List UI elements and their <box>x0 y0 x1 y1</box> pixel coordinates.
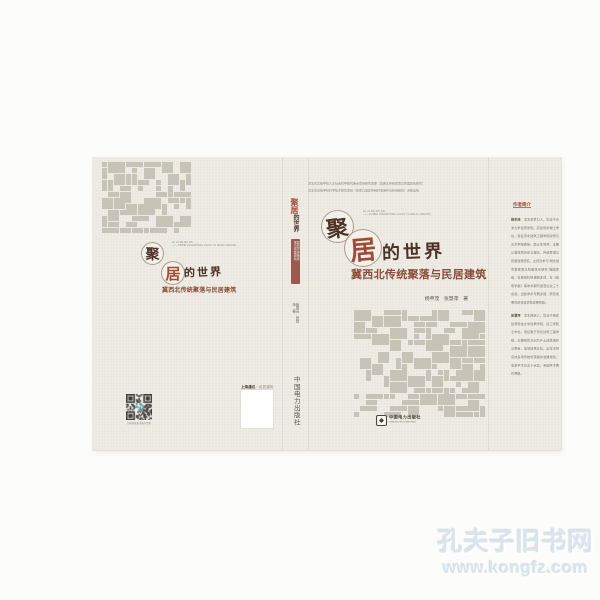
front-title-char2: 居 <box>348 228 377 267</box>
book-jacket-spread: JU JU DE SHI JIE —— JIXIBEI CHUANTONG JU… <box>93 158 561 450</box>
author-1-name: 杨申茂 <box>511 218 521 222</box>
qr-code <box>126 394 152 420</box>
spine-title: 聚居的世界 <box>286 198 304 244</box>
author-flap-panel: 作者简介 杨申茂 河北张家口人，毕业于天津大学建筑学院，获建筑学博士学位。现任河… <box>488 158 561 450</box>
kongfz-watermark: 孔夫子旧书网 www.kongfz.com <box>433 530 598 576</box>
spine-authors-text: 杨申茂 张慧萍 著 <box>292 303 299 323</box>
spine-publisher-text: 中国电力出版社 <box>292 376 299 432</box>
spine-publisher: 中国电力出版社 <box>287 376 303 432</box>
back-title-char2: 居 <box>165 263 180 284</box>
watermark-site-url: www.kongfz.com <box>433 559 598 576</box>
front-authors: 杨申茂 张慧萍 著 <box>408 296 468 302</box>
qr-caption: 扫码获取更多图书资讯 <box>119 422 159 425</box>
back-title-char1: 聚 <box>146 244 160 264</box>
front-title-circle-ju2: 居 <box>344 229 382 267</box>
publisher-name-cn: 中国电力出版社 <box>389 415 431 421</box>
front-title-rest: 的世界 <box>382 237 446 265</box>
front-tagline-line2: —— JIXIBEI CHUANTONG JULUO YU MINJU JIAN… <box>363 213 459 216</box>
shelf-label: 上架建议 <box>241 386 255 390</box>
spine-title-char2: 居 <box>290 206 300 214</box>
front-note-line2: 河北省高等学校科学技术研究项目（张家口地区传统村落保护与利用研究）资助出版 <box>308 189 468 193</box>
spine-subtitle-band: 冀西北传统聚落与民居建筑 <box>291 239 300 284</box>
spine-authors: 杨申茂 张慧萍 著 <box>286 303 304 339</box>
author-bio-1: 杨申茂 河北张家口人，毕业于天津大学建筑学院，获建筑学博士学位。现任河北建筑工程… <box>511 216 559 307</box>
book-listing-photo: { "watermark": { "site_name": "孔夫子旧书网", … <box>0 0 600 600</box>
barcode-box <box>241 390 273 428</box>
spine-title-rest: 的世界 <box>292 214 299 232</box>
back-title-circle-ju1: 聚 <box>141 242 164 265</box>
publisher-logo-icon <box>376 415 387 426</box>
author-1-bio-text: 河北张家口人，毕业于天津大学建筑学院，获建筑学博士学位。现任河北建筑工程学院建筑… <box>511 218 559 305</box>
publisher-name-en: CHINA ELECTRIC POWER PRESS <box>389 421 423 423</box>
author-2-name: 张慧萍 <box>511 314 521 318</box>
shelf-value: ：民居建筑 <box>255 386 273 390</box>
front-note-line1: 河北省高等学校人文社会科学研究重点项目研究成果（冀西北传统聚落与民居建筑研究） <box>308 182 468 186</box>
back-village-pattern <box>102 162 192 234</box>
author-2-bio-text: 河北保定人，毕业于西安建筑科技大学建筑学院，获工学硕士学位。现任教于河北建筑工程… <box>511 314 559 376</box>
front-cover-panel: 河北省高等学校人文社会科学研究重点项目研究成果（冀西北传统聚落与民居建筑研究） … <box>308 158 488 450</box>
front-title-tagline: JU JU DE SHI JIE —— JIXIBEI CHUANTONG JU… <box>363 210 459 216</box>
back-title-circle-ju2: 居 <box>161 261 185 285</box>
spine-panel: 聚居的世界 冀西北传统聚落与民居建筑 杨申茂 张慧萍 著 中国电力出版社 <box>282 158 308 450</box>
back-title-rest: 的世界 <box>184 263 224 280</box>
front-village-pattern <box>354 310 486 418</box>
spine-subtitle-text: 冀西北传统聚落与民居建筑 <box>293 241 299 263</box>
back-subtitle: 冀西北传统聚落与民居建筑 <box>162 285 236 294</box>
front-subtitle: 冀西北传统聚落与民居建筑 <box>351 266 487 282</box>
back-tagline-line2: —— JIXIBEI CHUANTONG JULUO YU MINJU JIAN… <box>172 244 237 247</box>
author-bio-2: 张慧萍 河北保定人，毕业于西安建筑科技大学建筑学院，获工学硕士学位。现任教于河北… <box>511 312 559 378</box>
watermark-site-name: 孔夫子旧书网 <box>433 530 598 555</box>
spine-title-char1: 聚 <box>290 198 300 206</box>
back-cover-panel: JU JU DE SHI JIE —— JIXIBEI CHUANTONG JU… <box>93 158 282 450</box>
back-title-tagline: JU JU DE SHI JIE —— JIXIBEI CHUANTONG JU… <box>172 241 237 247</box>
flap-heading: 作者简介 <box>513 202 543 208</box>
